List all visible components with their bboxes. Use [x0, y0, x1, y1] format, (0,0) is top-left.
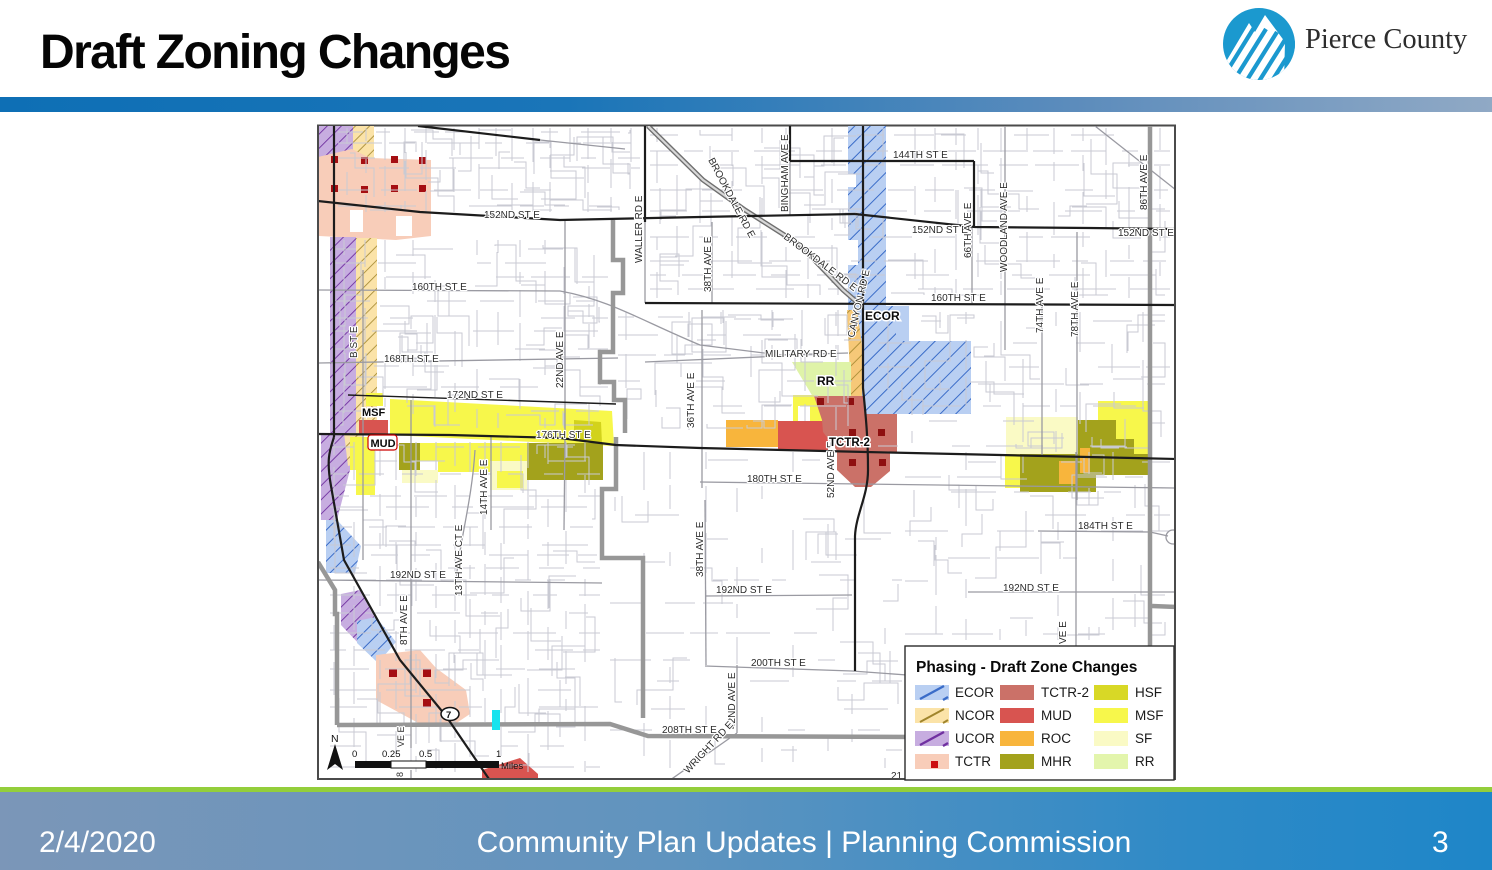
svg-text:192ND ST E: 192ND ST E [390, 570, 446, 581]
svg-text:8TH AVE E: 8TH AVE E [399, 595, 410, 645]
svg-text:BINGHAM AVE E: BINGHAM AVE E [780, 134, 791, 212]
svg-text:Phasing - Draft Zone Changes: Phasing - Draft Zone Changes [916, 659, 1137, 676]
svg-text:74TH AVE E: 74TH AVE E [1035, 277, 1046, 333]
svg-text:22ND AVE E: 22ND AVE E [555, 331, 566, 388]
svg-text:0: 0 [352, 749, 357, 760]
svg-text:WOODLAND AVE E: WOODLAND AVE E [999, 182, 1010, 272]
svg-text:RR: RR [817, 374, 835, 388]
svg-text:0.25: 0.25 [382, 749, 401, 760]
svg-text:208TH ST E: 208TH ST E [662, 725, 717, 736]
svg-text:MSF: MSF [1135, 708, 1164, 723]
svg-text:WALLER RD E: WALLER RD E [634, 195, 645, 263]
svg-text:MILITARY RD E: MILITARY RD E [765, 349, 837, 360]
svg-text:TCTR-2: TCTR-2 [1041, 685, 1089, 700]
svg-text:ECOR: ECOR [865, 309, 900, 323]
svg-text:21: 21 [891, 771, 903, 782]
svg-text:SF: SF [1135, 731, 1152, 746]
svg-text:14TH AVE E: 14TH AVE E [479, 459, 490, 515]
svg-text:13TH AVE CT E: 13TH AVE CT E [454, 524, 465, 596]
svg-text:ECOR: ECOR [955, 685, 994, 700]
svg-text:52ND AVE E: 52ND AVE E [826, 441, 837, 498]
svg-text:0.5: 0.5 [419, 749, 432, 760]
svg-text:152ND ST E: 152ND ST E [912, 225, 968, 236]
svg-text:MSF: MSF [362, 407, 386, 419]
svg-text:NCOR: NCOR [955, 708, 995, 723]
svg-text:152ND ST E: 152ND ST E [1118, 228, 1174, 239]
svg-text:VE E: VE E [396, 726, 406, 747]
svg-text:MHR: MHR [1041, 754, 1072, 769]
svg-text:VE E: VE E [1058, 621, 1069, 644]
svg-text:66TH AVE E: 66TH AVE E [963, 202, 974, 258]
svg-text:TCTR-2: TCTR-2 [829, 437, 870, 449]
svg-text:38TH AVE E: 38TH AVE E [703, 236, 714, 292]
svg-text:N: N [331, 733, 339, 745]
svg-text:RR: RR [1135, 754, 1155, 769]
svg-text:38TH AVE E: 38TH AVE E [695, 521, 706, 577]
svg-text:192ND ST E: 192ND ST E [1003, 583, 1059, 594]
svg-text:78TH AVE E: 78TH AVE E [1070, 281, 1081, 337]
svg-text:MUD: MUD [1041, 708, 1072, 723]
svg-text:200TH ST E: 200TH ST E [751, 658, 806, 669]
svg-text:172ND ST E: 172ND ST E [447, 390, 503, 401]
svg-text:HSF: HSF [1135, 685, 1162, 700]
svg-text:8: 8 [395, 772, 405, 777]
svg-text:1: 1 [496, 749, 501, 760]
svg-text:86TH AVE E: 86TH AVE E [1139, 154, 1150, 210]
svg-text:160TH ST E: 160TH ST E [412, 282, 467, 293]
svg-text:152ND ST E: 152ND ST E [484, 210, 540, 221]
svg-text:168TH ST E: 168TH ST E [384, 354, 439, 365]
svg-text:160TH ST E: 160TH ST E [931, 293, 986, 304]
svg-text:MUD: MUD [371, 438, 396, 450]
svg-text:B ST E: B ST E [349, 326, 360, 358]
svg-text:Miles: Miles [501, 761, 523, 772]
svg-text:192ND ST E: 192ND ST E [716, 585, 772, 596]
svg-text:7: 7 [446, 710, 451, 721]
svg-text:36TH AVE E: 36TH AVE E [686, 372, 697, 428]
svg-text:180TH ST E: 180TH ST E [747, 474, 802, 485]
svg-text:TCTR: TCTR [955, 754, 991, 769]
svg-text:176TH ST E: 176TH ST E [536, 430, 591, 441]
svg-text:144TH ST E: 144TH ST E [893, 150, 948, 161]
svg-text:184TH ST E: 184TH ST E [1078, 521, 1133, 532]
svg-text:ROC: ROC [1041, 731, 1071, 746]
svg-text:UCOR: UCOR [955, 731, 995, 746]
